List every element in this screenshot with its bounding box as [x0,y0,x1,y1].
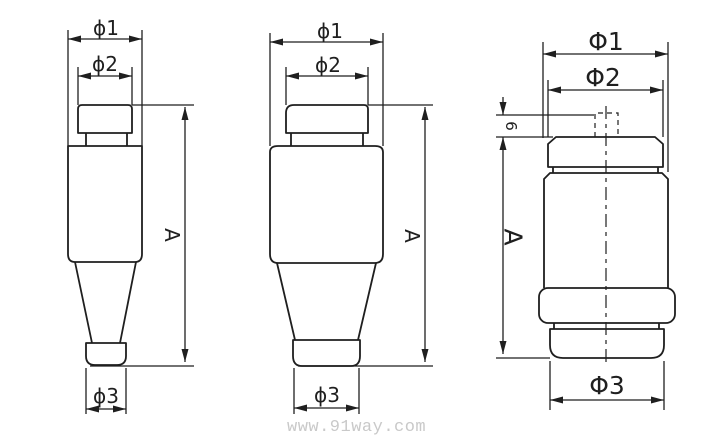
phi1-label: ϕ1 [317,19,343,43]
top-cap-outline [78,105,132,133]
figure-fuse-type-1: ϕ1 ϕ2 A ϕ3 [68,16,194,414]
phi1-label: ϕ1 [93,16,119,40]
collar-ring-outline [539,288,675,323]
phi2-label: ϕ2 [315,53,341,77]
base-cap-outline [550,329,664,358]
phi2-label: Φ2 [585,63,621,92]
figure-fuse-type-2: ϕ1 ϕ2 A ϕ3 [270,19,433,414]
top-cap-outline [286,105,368,133]
height-label: A [160,228,184,242]
body-outline [270,146,383,263]
technical-drawing-canvas: ϕ1 ϕ2 A ϕ3 ϕ1 ϕ2 A [0,0,720,437]
phi3-label: Φ3 [589,371,625,400]
phi3-label: ϕ3 [314,383,340,407]
taper-outline [75,262,136,343]
tip-height-label: 6 [502,121,520,131]
body-outline [68,146,142,262]
tip-outline [293,340,360,366]
phi3-label: ϕ3 [93,384,119,408]
watermark-text: www.91way.com [287,418,426,437]
taper-outline [277,263,376,340]
phi2-label: ϕ2 [92,52,118,76]
phi1-label: Φ1 [588,27,624,56]
neck-outline [291,133,363,146]
figure-fuse-type-3: Φ1 Φ2 6 A Φ3 [496,27,675,410]
height-label: A [400,229,424,243]
tip-outline [86,343,126,365]
neck-outline [86,133,127,146]
height-label: A [499,228,528,245]
